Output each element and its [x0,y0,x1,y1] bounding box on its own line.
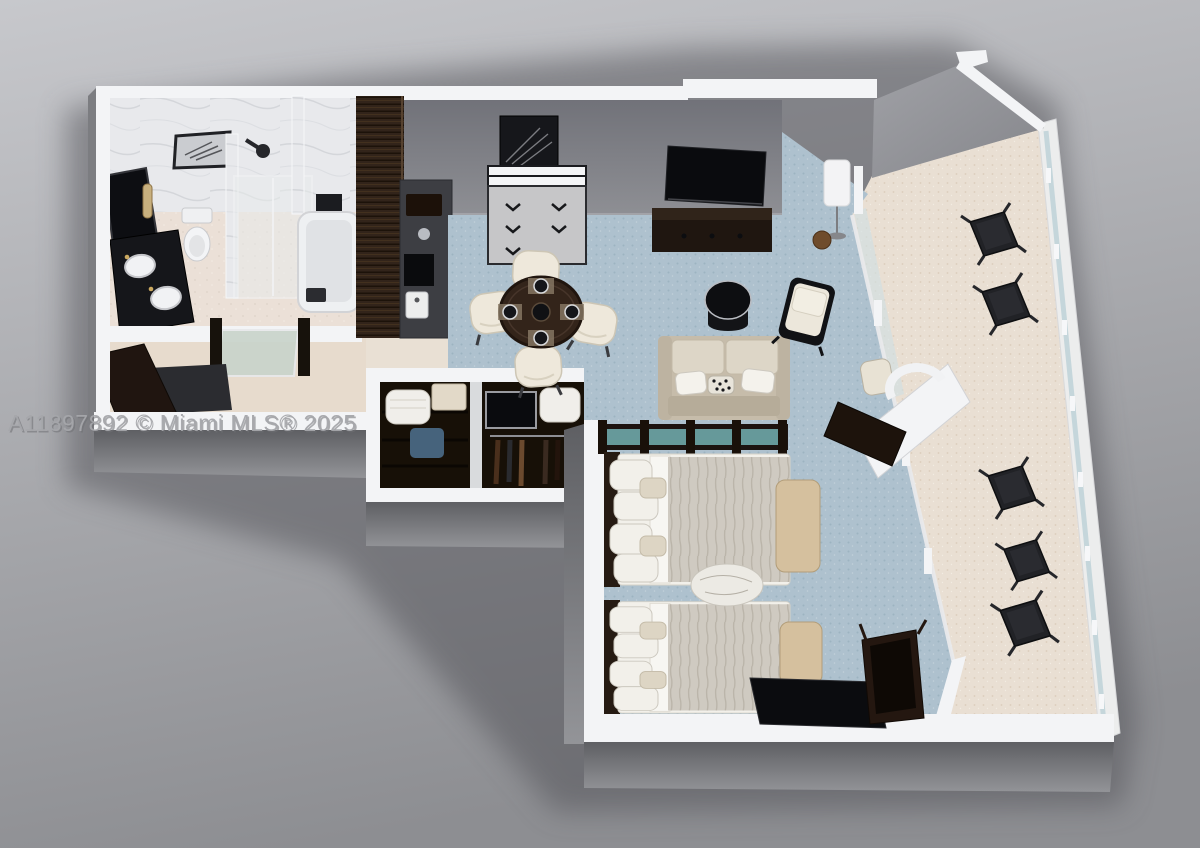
closet-left-band [366,368,380,502]
wall-tv [665,146,766,206]
bedroom-west-ext [564,424,584,744]
wall-left-ext [88,88,96,428]
wall-left-band [96,86,110,428]
floor-plan-canvas: A11897892 © Miami MLS® 2025 A11897892 © … [0,0,1200,848]
door-frame-post-4 [924,548,932,574]
wall-top-right-band [683,79,877,98]
bathtub [298,212,360,312]
bar-counter [400,180,452,338]
mls-watermark-text: A11897892 © Miami MLS® 2025 [8,410,357,436]
foot-bench-2 [780,622,822,684]
toilet [182,208,212,261]
bathroom [104,96,360,338]
vanity-lamp [143,184,152,218]
closet-divider [470,382,482,490]
throw-blanket [691,564,763,606]
bed-1 [604,452,790,587]
checker-pillow [708,376,734,394]
bedroom-west-wall [584,420,604,744]
glass-headboard-partition [598,420,788,454]
media-console [652,208,772,252]
door-frame-post-1 [854,166,863,214]
dresser [488,166,586,264]
living-framed-artwork [500,116,558,170]
closet-south-ext [366,502,590,548]
foot-bench-1 [776,480,820,572]
tub-partition-wall [292,96,304,214]
door-frame-post-2 [874,300,882,326]
coffee-table [705,281,751,331]
leaning-tv [750,678,886,728]
bathroom-framed-artwork [174,132,230,168]
sofa [658,336,790,420]
bedroom-south-ext [584,742,1114,792]
closet-south-band [366,488,590,502]
plant-pot [813,231,831,249]
mls-watermark: A11897892 © Miami MLS® 2025 A11897892 © … [8,410,358,438]
closet-bay [366,368,590,548]
wardrobe [356,96,404,338]
floor-plan-image: A11897892 © Miami MLS® 2025 A11897892 © … [0,0,1200,848]
